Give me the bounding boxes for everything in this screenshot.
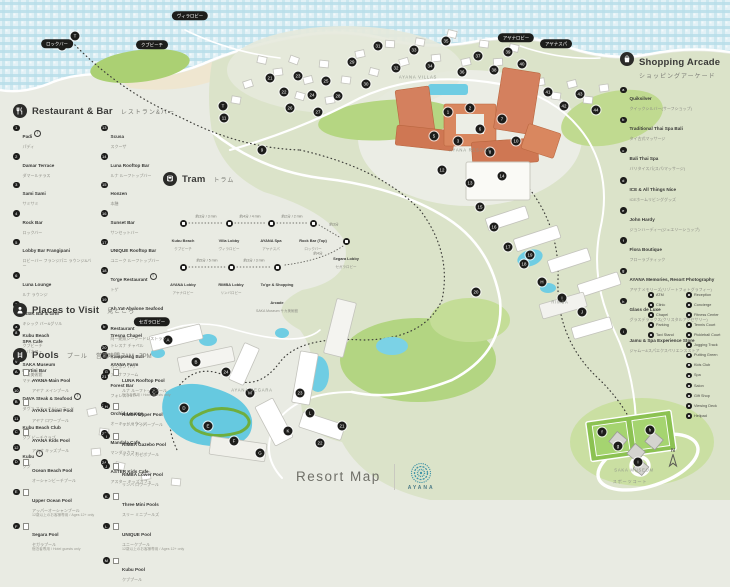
tram-stop-dot bbox=[180, 220, 187, 227]
tram-travel-time: 約2分 / 2 min bbox=[282, 215, 303, 220]
map-marker: 16 bbox=[490, 223, 499, 232]
tram-stop-pill: クブビーチ bbox=[136, 40, 168, 49]
restaurant-item: 5 Lobby Bar Frangipaniロビーバー フランジパニ ラウンジ&… bbox=[13, 238, 93, 268]
shopping-item: f Flora Boutiqueフローラブティック bbox=[620, 237, 726, 262]
pool-item: L UNIQUE Poolユニークプール12歳以上のお客様専用 / Ages 1… bbox=[103, 522, 189, 551]
map-marker: T bbox=[71, 32, 80, 41]
facility-item: Reception bbox=[686, 292, 730, 298]
facility-item: Spa bbox=[686, 373, 730, 379]
map-marker: 24 bbox=[222, 368, 231, 377]
tram-route-diagram: Kubu Beach クブビーチ Villa Lobby ヴィラロビー AYAN… bbox=[163, 192, 368, 284]
facility-item: Clinic bbox=[648, 302, 680, 308]
map-marker: 27 bbox=[314, 108, 323, 117]
map-marker: B bbox=[192, 358, 201, 367]
facility-item: Concierge bbox=[686, 302, 730, 308]
pool-checkbox bbox=[113, 403, 120, 410]
facility-icon bbox=[686, 322, 692, 328]
shopping-title-jp: ショッピングアーケード bbox=[639, 71, 720, 80]
map-marker: 23 bbox=[296, 389, 305, 398]
shopping-item: e John Hardyジョンハーディー(ジュエリーショップ) bbox=[620, 207, 726, 232]
facility-icon bbox=[686, 292, 692, 298]
map-marker: 18 bbox=[520, 260, 529, 269]
map-marker: 29 bbox=[348, 58, 357, 67]
pool-checkbox bbox=[23, 429, 30, 436]
map-marker: 20 bbox=[472, 288, 481, 297]
facility-item: Pickleball Court bbox=[686, 332, 730, 338]
pool-checkbox bbox=[113, 558, 120, 565]
brand-name: AYANA bbox=[408, 485, 435, 491]
restaurant-item: 3 Sami Samiサミサミ bbox=[13, 181, 93, 206]
facility-icon bbox=[648, 332, 654, 338]
map-marker: 13 bbox=[466, 179, 475, 188]
shopping-item: a Quiksilverクイックシルバー(サーフショップ) bbox=[620, 86, 726, 111]
place-item: a Kubu Beachクブビーチ bbox=[13, 323, 93, 348]
pool-item: B AYANA Lower Poolアヤナ ロワープール bbox=[13, 398, 95, 423]
map-marker: 12 bbox=[438, 166, 447, 175]
map-title: Resort Map bbox=[296, 469, 381, 484]
tram-stop-pill: ヴィラロビー bbox=[172, 11, 208, 20]
facility-icon bbox=[686, 363, 692, 369]
facility-item: Taxi Stand bbox=[648, 332, 680, 338]
tram-icon bbox=[163, 172, 177, 186]
map-marker: 25 bbox=[322, 77, 331, 86]
pool-checkbox bbox=[113, 369, 120, 376]
place-item: b Tresna Chapelトレスナ チャペル bbox=[101, 323, 181, 348]
facility-icon bbox=[686, 332, 692, 338]
tram-stop: RIMBA Lobby リンバロビー bbox=[209, 264, 253, 295]
map-marker: 44 bbox=[592, 106, 601, 115]
tram-stop-dot bbox=[268, 220, 275, 227]
map-marker: 26 bbox=[286, 104, 295, 113]
shopping-item: c Bali Thai Spaバリタイスパ(スパ/マッサージ) bbox=[620, 146, 726, 171]
map-marker: 7 bbox=[498, 115, 507, 124]
restaurant-title: Restaurant & Bar bbox=[32, 106, 113, 117]
tram-stop: To'ge & Shopping Arcade SAKA Museum サカ美術… bbox=[255, 264, 299, 313]
map-area-label: AYANA SEGARA bbox=[231, 388, 273, 393]
shopping-item: g AYANA Memories, Resort Photographyアヤナメ… bbox=[620, 267, 726, 292]
tram-stop: Villa Lobby ヴィラロビー bbox=[207, 220, 251, 251]
compass: N bbox=[664, 448, 682, 473]
tram-travel-time: 約5分 / 5 min bbox=[197, 259, 218, 264]
tram-travel-time: 約3分 / 3 min bbox=[196, 215, 217, 220]
pools-title-jp: プール bbox=[67, 351, 88, 360]
ayana-logo: AYANA bbox=[408, 462, 435, 491]
pools-hours: 営業時間 7AM - 7PM bbox=[96, 351, 152, 360]
map-marker: 17 bbox=[504, 243, 513, 252]
map-marker: g bbox=[614, 442, 623, 451]
map-area-label: スポーツコート bbox=[613, 479, 648, 485]
pool-item: D Ocean Beach Poolオーシャンビーチプール bbox=[13, 458, 95, 483]
map-marker: 2 bbox=[466, 104, 475, 113]
facility-item: Chapel bbox=[648, 312, 680, 318]
tram-stop: Kubu Beach クブビーチ bbox=[161, 220, 205, 251]
map-marker: 9 bbox=[258, 146, 267, 155]
facility-icon bbox=[686, 353, 692, 359]
facility-icon bbox=[686, 393, 692, 399]
map-marker: 5 bbox=[430, 132, 439, 141]
restaurant-item: 1 PadiTパディ bbox=[13, 124, 93, 149]
map-marker: 35 bbox=[442, 37, 451, 46]
restaurant-icon bbox=[13, 104, 27, 118]
map-marker: 22 bbox=[316, 439, 325, 448]
map-marker: 34 bbox=[426, 62, 435, 71]
shopping-item: b Traditional Thai Spa Baliタイ古式マッサージ bbox=[620, 116, 726, 141]
shopping-item: d ICE & All Things NiceICEホームリビンググッズ bbox=[620, 177, 726, 202]
footer-divider bbox=[394, 464, 395, 490]
map-area-label: SAKA MUSEUM bbox=[614, 468, 654, 473]
tram-stop-pill: アヤナロビー bbox=[498, 33, 534, 42]
map-marker: 31 bbox=[374, 42, 383, 51]
pools-legend: Pools プール 営業時間 7AM - 7PM A AYANA Main Po… bbox=[13, 348, 191, 587]
map-marker: 42 bbox=[560, 102, 569, 111]
pool-item: F Segara Poolセガラプール宿泊者専用 / Hotel guests … bbox=[13, 522, 95, 551]
restaurant-item: 4 Rock Barロックバー bbox=[13, 210, 93, 235]
compass-arrow-icon bbox=[667, 454, 679, 468]
map-marker: 14 bbox=[498, 172, 507, 181]
map-marker: 15 bbox=[476, 203, 485, 212]
pool-checkbox bbox=[113, 463, 120, 470]
map-area-label: RIMBA bbox=[551, 300, 568, 305]
facility-icon bbox=[686, 403, 692, 409]
tram-stop-dot bbox=[310, 220, 317, 227]
tram-travel-time: 約3分 / 3 min bbox=[244, 259, 265, 264]
map-marker: 32 bbox=[392, 64, 401, 73]
facility-item: Viewing Deck bbox=[686, 403, 730, 409]
facility-icon bbox=[686, 413, 692, 419]
map-marker: F bbox=[230, 437, 239, 446]
restaurant-item: 6 Luna Loungeルナ ラウンジ bbox=[13, 272, 93, 297]
facility-item: Fitness Center bbox=[686, 312, 730, 318]
map-marker: 36 bbox=[458, 68, 467, 77]
facility-icon bbox=[648, 292, 654, 298]
tram-travel-time: 約3分 bbox=[329, 223, 338, 228]
pools-title: Pools bbox=[32, 350, 59, 361]
pool-item: H RIMBA Upper Poolリンバ アッパープール bbox=[103, 402, 189, 427]
map-marker: L bbox=[306, 409, 315, 418]
facility-item: Tennis Court bbox=[686, 322, 730, 328]
map-marker: 21 bbox=[338, 422, 347, 431]
pool-checkbox bbox=[23, 399, 30, 406]
map-marker: E bbox=[204, 422, 213, 431]
map-marker: 1 bbox=[444, 108, 453, 117]
map-marker: 23 bbox=[294, 72, 303, 81]
map-marker: K bbox=[284, 427, 293, 436]
pool-item: E Upper Ocean Poolアッパーオーシャンプール12歳以上のお客様専… bbox=[13, 488, 95, 517]
facility-icon bbox=[648, 322, 654, 328]
map-marker: 3 bbox=[454, 137, 463, 146]
map-marker: 10 bbox=[512, 137, 521, 146]
facility-icon bbox=[686, 373, 692, 379]
map-marker: 22 bbox=[280, 88, 289, 97]
tram-stop-dot bbox=[180, 264, 187, 271]
shopping-title: Shopping Arcade bbox=[639, 57, 720, 68]
facility-icon bbox=[648, 312, 654, 318]
tram-stop-dot bbox=[226, 220, 233, 227]
places-icon bbox=[13, 303, 27, 317]
pool-checkbox bbox=[23, 489, 30, 496]
restaurant-item: 2 Damar Terraceダマールテラス bbox=[13, 153, 93, 178]
facility-item: Putting Green bbox=[686, 353, 730, 359]
pool-checkbox bbox=[113, 523, 120, 530]
map-marker: 28 bbox=[334, 92, 343, 101]
tram-stop: AYANA Spa アヤナスパ bbox=[249, 220, 293, 251]
map-marker: 33 bbox=[410, 46, 419, 55]
tram-travel-time: 約4分 bbox=[313, 252, 322, 257]
tram-stop-dot bbox=[274, 264, 281, 271]
map-marker: 43 bbox=[576, 90, 585, 99]
tram-title-jp: トラム bbox=[214, 175, 235, 184]
tram-legend: Tram トラム Kubu Beach クブビーチ bbox=[163, 172, 373, 284]
facilities-legend: ATM Clinic Chapel Parking Taxi Stand bbox=[648, 292, 730, 423]
shopping-bag-icon bbox=[620, 52, 634, 66]
facility-item: Kids Club bbox=[686, 363, 730, 369]
pool-checkbox bbox=[23, 369, 30, 376]
map-marker: 21 bbox=[266, 74, 275, 83]
map-marker: 40 bbox=[518, 60, 527, 69]
map-marker: T bbox=[219, 102, 228, 111]
restaurant-item: 13 Scusaスクーザ bbox=[101, 124, 181, 149]
places-title-jp: 見どころ bbox=[107, 306, 135, 315]
pools-icon bbox=[13, 348, 27, 362]
map-marker: 37 bbox=[474, 52, 483, 61]
pool-checkbox bbox=[23, 459, 30, 466]
facility-icon bbox=[686, 302, 692, 308]
map-area-label: AYANA RESORT bbox=[449, 148, 490, 153]
pool-item: I RIMBA Gazebo Poolリンバ ガゼボプール bbox=[103, 432, 189, 457]
pool-checkbox bbox=[23, 523, 30, 530]
facility-icon bbox=[648, 302, 654, 308]
map-marker: G bbox=[256, 449, 265, 458]
map-marker: 24 bbox=[308, 91, 317, 100]
tram-stop-dot bbox=[228, 264, 235, 271]
pool-item: G LUNA Rooftop Poolルナ ルーフトッププール宿泊者専用 / H… bbox=[103, 368, 189, 397]
ayana-emblem-icon bbox=[410, 462, 432, 484]
facility-item: Salon bbox=[686, 383, 730, 389]
pool-item: M Kubu Poolクブプール bbox=[103, 557, 189, 582]
pool-checkbox bbox=[113, 493, 120, 500]
tram-stop: Segara Lobby セガラロビー bbox=[324, 238, 368, 269]
tram-stop-dot bbox=[343, 238, 350, 245]
facility-item: Jogging Track bbox=[686, 342, 730, 348]
pool-checkbox bbox=[113, 433, 120, 440]
facility-item: Helipad bbox=[686, 413, 730, 419]
facility-icon bbox=[686, 312, 692, 318]
facility-icon bbox=[686, 383, 692, 389]
map-marker: 41 bbox=[544, 88, 553, 97]
facility-item: Parking bbox=[648, 322, 680, 328]
pool-item: K Three Mini Poolsスリー ミニプールズ bbox=[103, 492, 189, 517]
tram-travel-time: 約4分 / 4 min bbox=[240, 215, 261, 220]
tram-title: Tram bbox=[182, 174, 206, 185]
resort-map-canvas: T4T1192122232425262728293031323334353637… bbox=[0, 0, 730, 500]
map-marker: f bbox=[598, 428, 607, 437]
tram-stop: AYANA Lobby アヤナロビー bbox=[161, 264, 205, 295]
pool-item: A AYANA Main Poolアヤナ メインプール bbox=[13, 368, 95, 393]
map-marker: h bbox=[646, 426, 655, 435]
garden-green-south-2 bbox=[430, 298, 510, 342]
map-area-label: AYANA VILLAS bbox=[399, 75, 437, 80]
map-marker: H bbox=[538, 278, 547, 287]
facility-item: Gift Shop bbox=[686, 393, 730, 399]
map-marker: 38 bbox=[490, 66, 499, 75]
pool-item: C AYANA Kids Poolアヤナ キッズプール bbox=[13, 428, 95, 453]
tram-stop-pill: ロックバー bbox=[41, 39, 73, 48]
map-marker: 30 bbox=[362, 80, 371, 89]
map-marker: J bbox=[578, 308, 587, 317]
map-marker: 6 bbox=[476, 125, 485, 134]
map-marker: 19 bbox=[526, 251, 535, 260]
restaurant-title-jp: レストラン&バー bbox=[121, 107, 175, 116]
map-marker: i bbox=[634, 458, 643, 467]
footer: Resort Map AYANA bbox=[296, 462, 435, 491]
facility-item: ATM bbox=[648, 292, 680, 298]
event-hall bbox=[466, 162, 530, 200]
pool-item: J RIMBA Lower Poolリンバ ロワープール bbox=[103, 462, 189, 487]
map-marker: 39 bbox=[504, 48, 513, 57]
map-marker: 11 bbox=[220, 114, 229, 123]
places-title: Places to Visit bbox=[32, 305, 99, 316]
facility-icon bbox=[686, 342, 692, 348]
tram-stop-pill: アヤナスパ bbox=[540, 39, 572, 48]
